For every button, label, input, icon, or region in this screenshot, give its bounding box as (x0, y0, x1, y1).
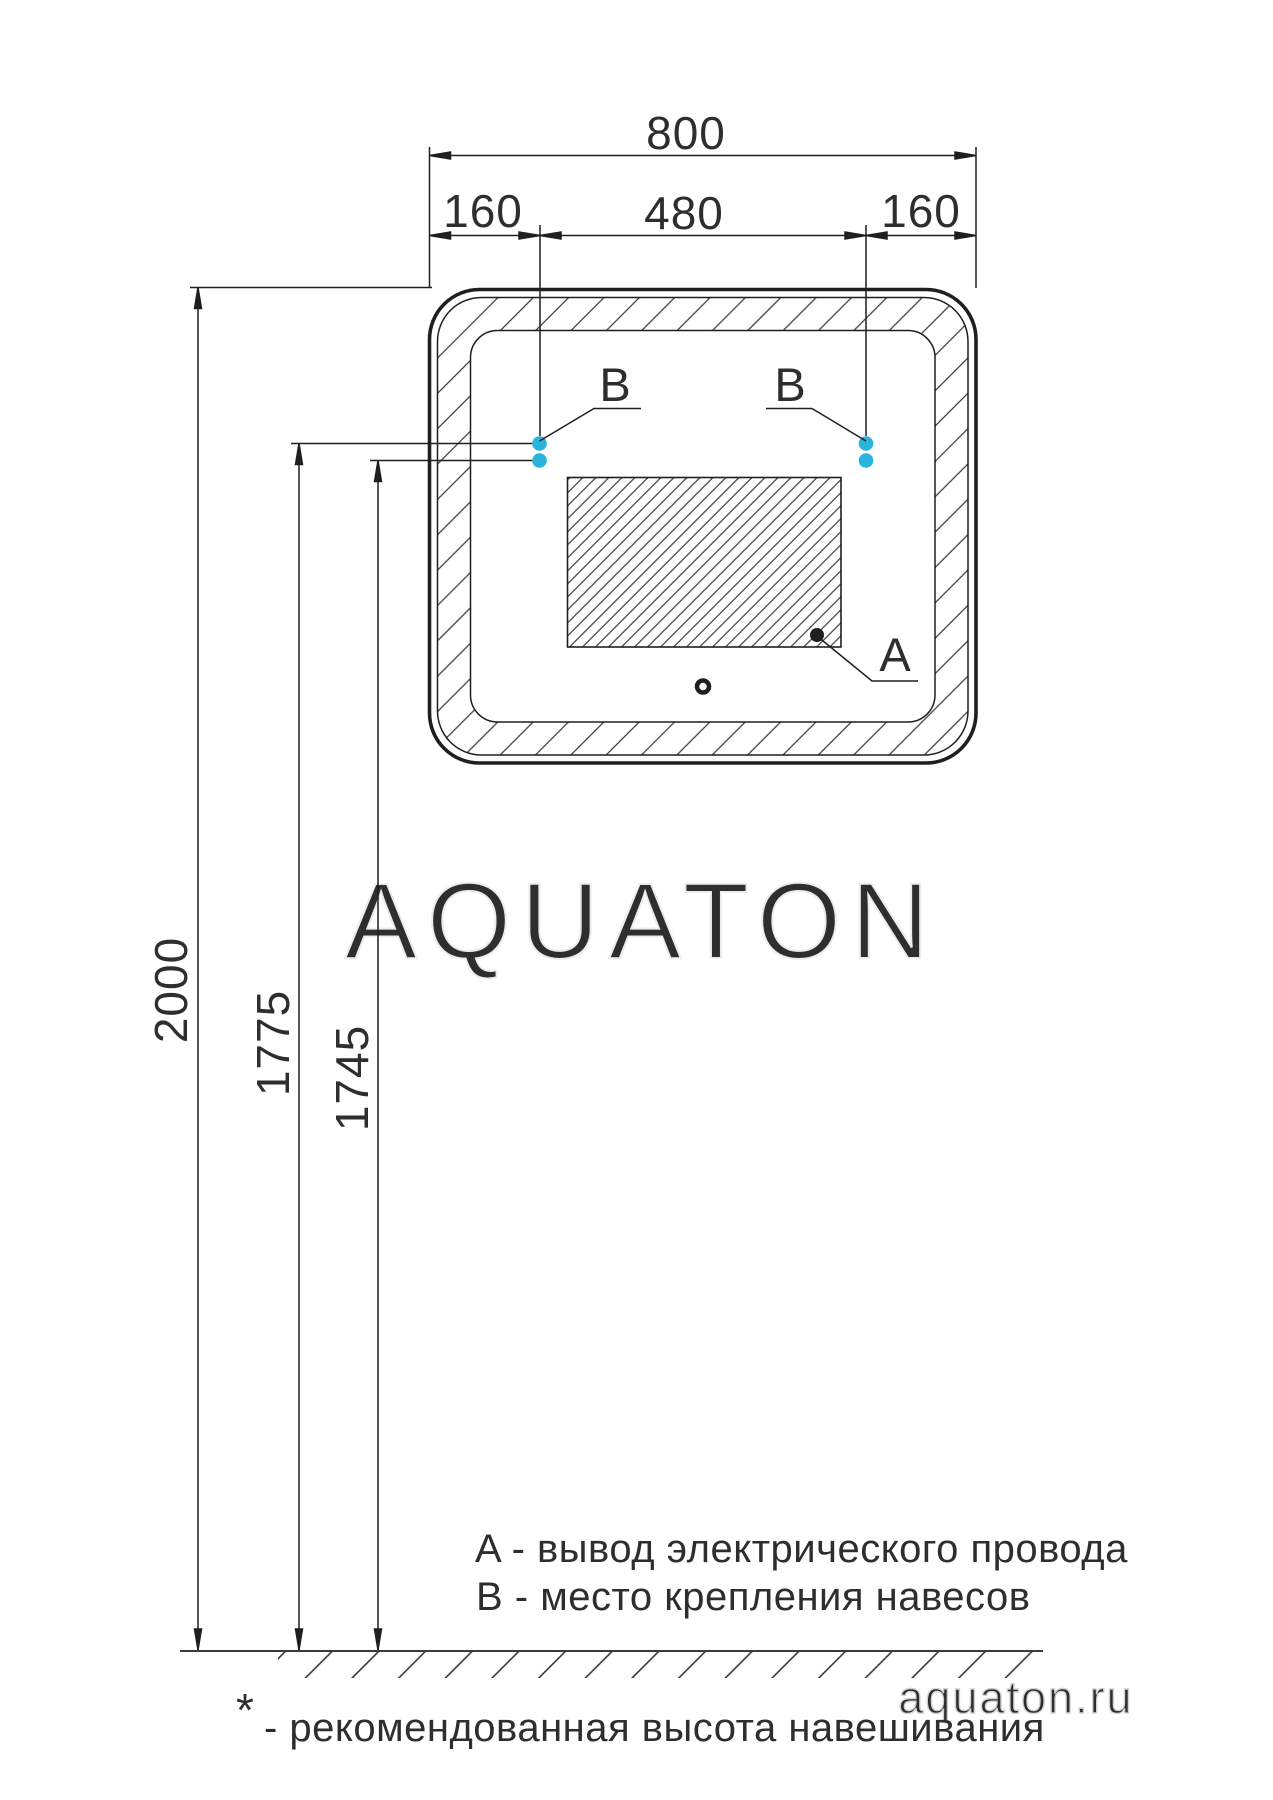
dim-label-160-left: 160 (443, 185, 523, 237)
arrowhead (430, 152, 451, 159)
installation-diagram: AQUATON 800 160 480 160 (0, 0, 1273, 1800)
legend-line-b: B - место крепления навесов (476, 1575, 1030, 1619)
arrowhead (955, 152, 976, 159)
arrowhead (195, 288, 202, 309)
arrowhead (375, 461, 382, 482)
dim-label-800: 800 (646, 107, 726, 159)
drawing-page: AQUATON 800 160 480 160 (0, 0, 1273, 1800)
callout-a: A (879, 628, 911, 681)
arrowhead (375, 1629, 382, 1650)
dim-label-1775: 1775 (247, 990, 299, 1096)
arrowhead (540, 232, 561, 239)
mount-point-dot (859, 453, 874, 468)
dim-label-480: 480 (644, 187, 724, 239)
arrowhead (296, 444, 303, 465)
arrowhead (296, 1629, 303, 1650)
electronics-panel (568, 478, 842, 648)
arrowhead (845, 232, 866, 239)
dim-label-2000: 2000 (145, 937, 197, 1043)
dim-label-160-right: 160 (881, 185, 961, 237)
callout-b-left: B (599, 358, 630, 411)
callout-b-right: B (774, 358, 805, 411)
legend-line-a: A - вывод электрического провода (475, 1527, 1128, 1571)
dim-label-1745: 1745 (326, 1025, 378, 1131)
arrowhead (195, 1629, 202, 1650)
footnote-asterisk: * (236, 1684, 254, 1736)
footnote-text: - рекомендованная высота навешивания (264, 1706, 1045, 1750)
mount-point-dot (532, 453, 547, 468)
brand-watermark: AQUATON (345, 860, 939, 981)
touch-sensor-circle (697, 681, 709, 693)
